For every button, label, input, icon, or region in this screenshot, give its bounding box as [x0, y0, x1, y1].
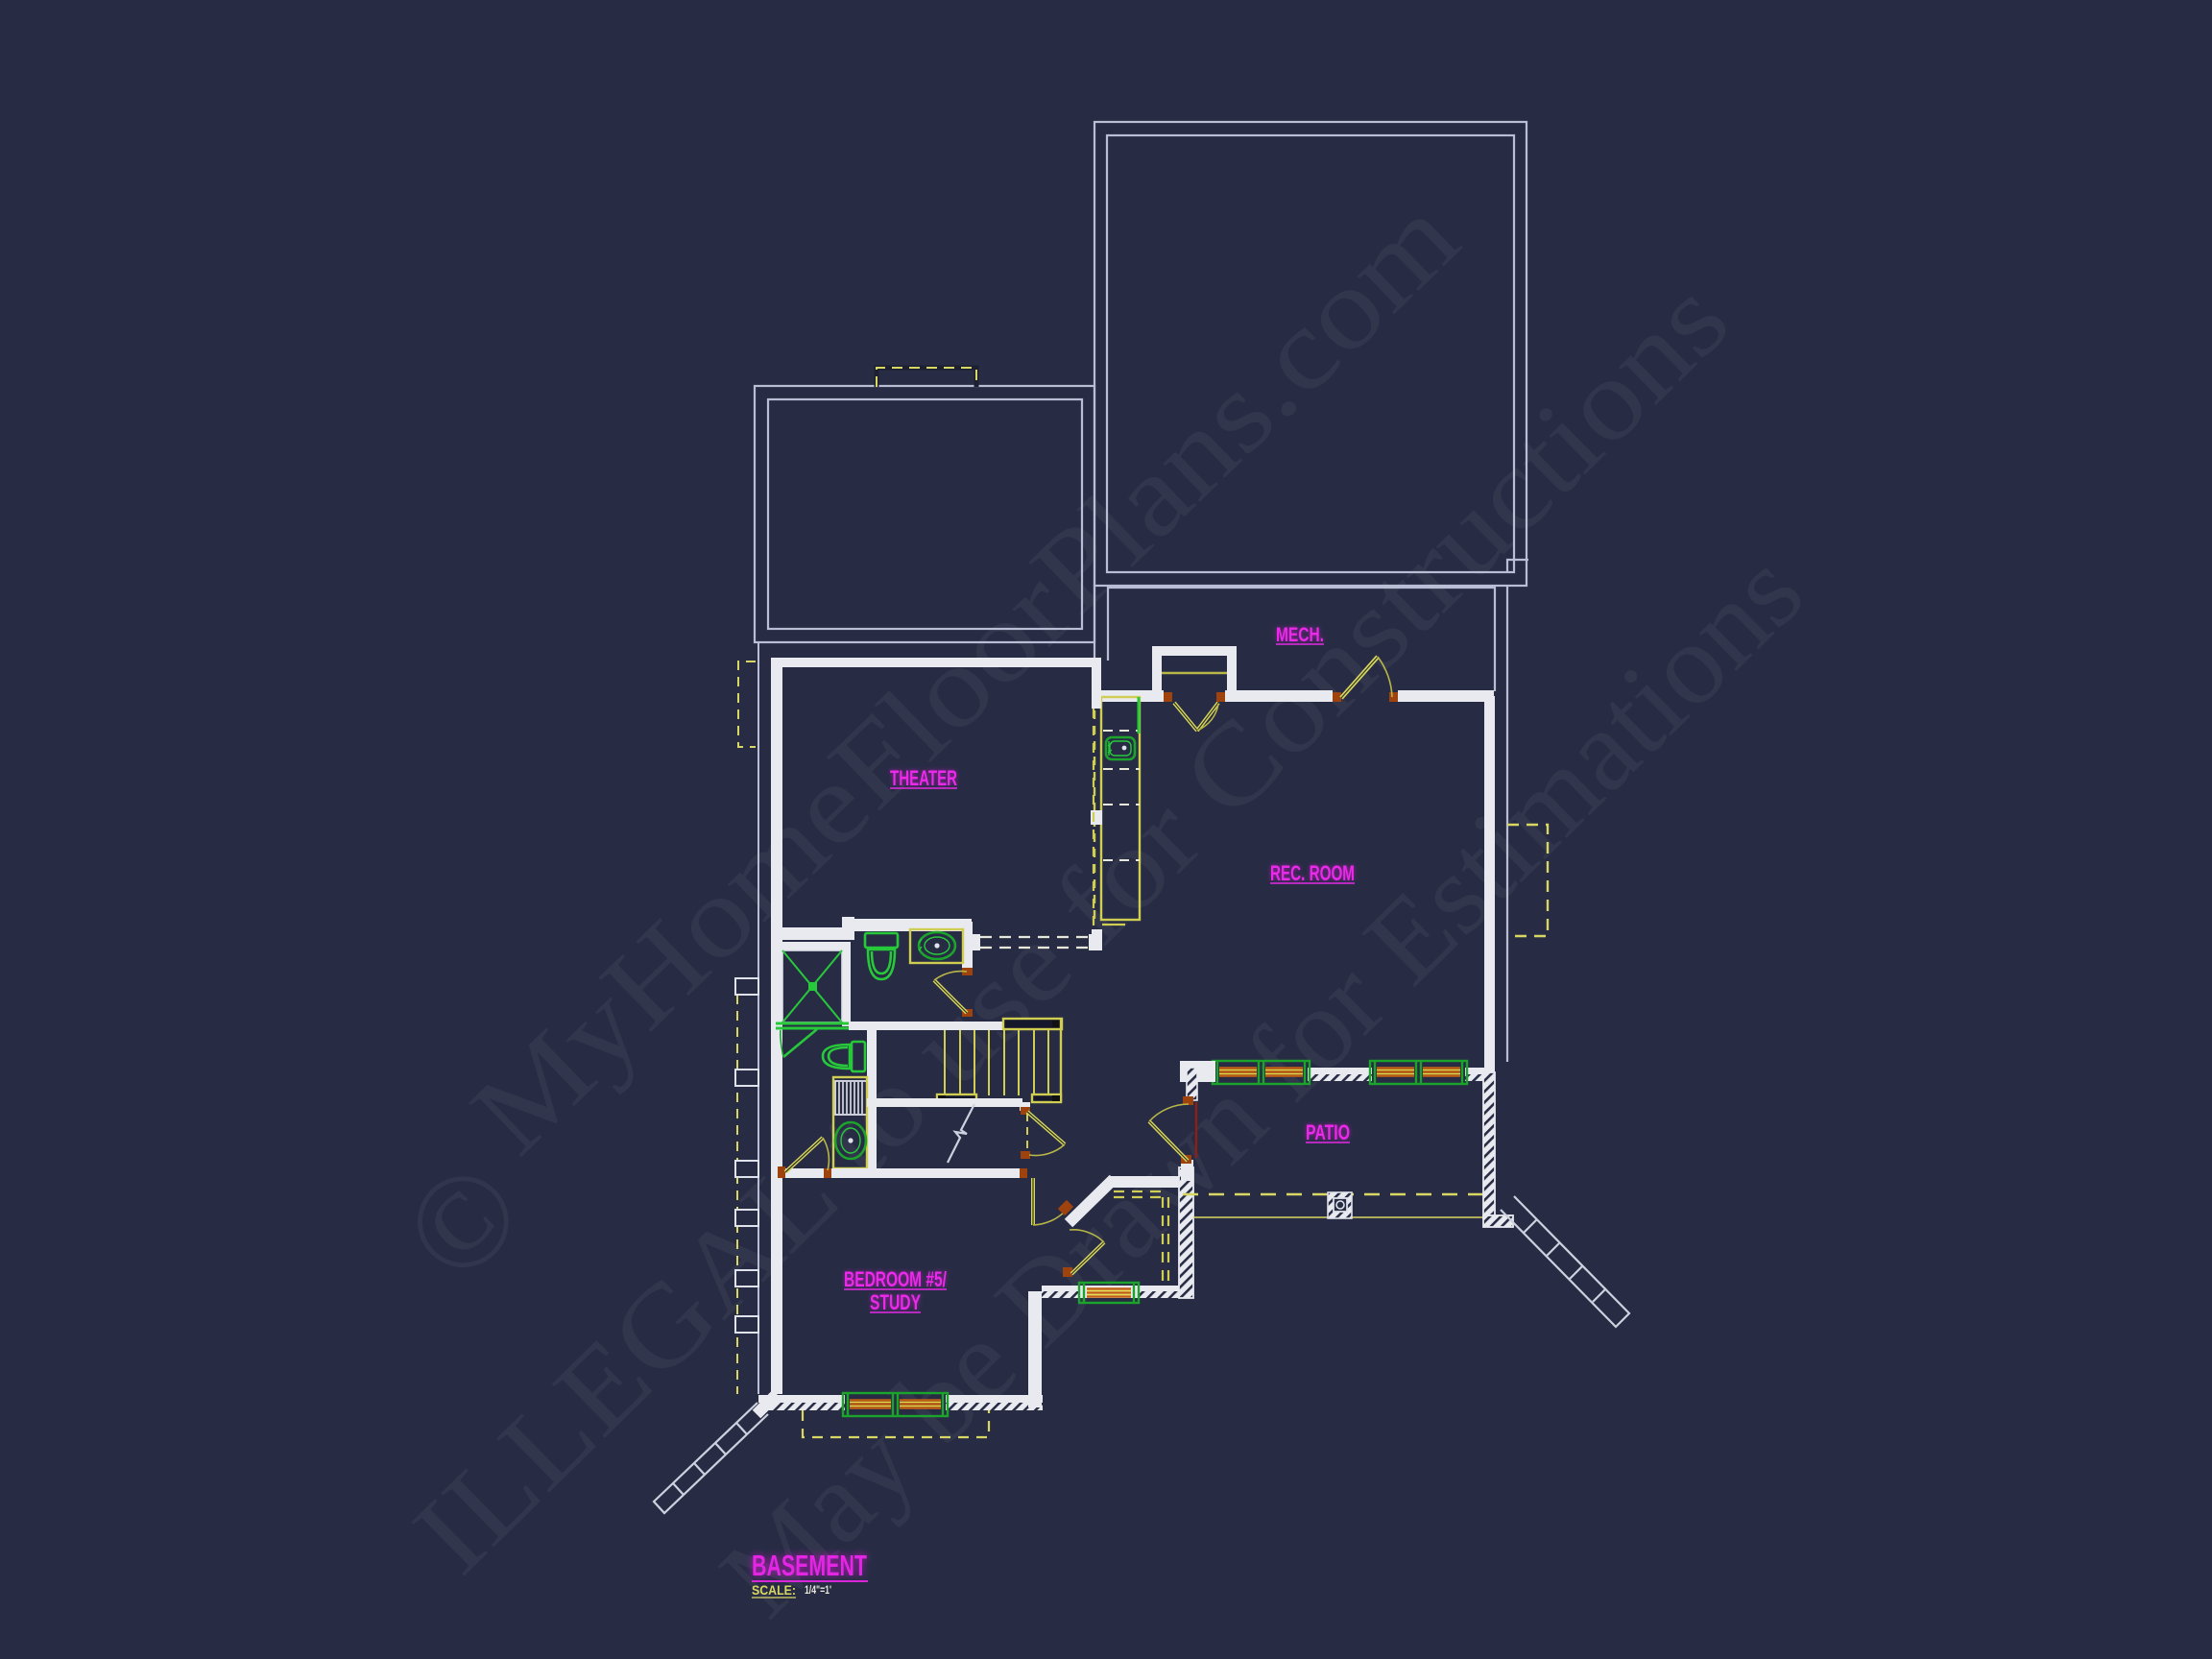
svg-text:1/4"=1': 1/4"=1' — [805, 1583, 831, 1597]
svg-text:BASEMENT: BASEMENT — [752, 1549, 867, 1582]
svg-text:THEATER: THEATER — [890, 766, 957, 790]
svg-text:SCALE:: SCALE: — [752, 1582, 796, 1598]
svg-text:BEDROOM #5/: BEDROOM #5/ — [844, 1267, 947, 1291]
svg-text:PATIO: PATIO — [1306, 1120, 1350, 1144]
svg-text:REC. ROOM: REC. ROOM — [1270, 861, 1355, 885]
svg-text:MECH.: MECH. — [1276, 624, 1324, 646]
svg-text:STUDY: STUDY — [870, 1290, 921, 1314]
